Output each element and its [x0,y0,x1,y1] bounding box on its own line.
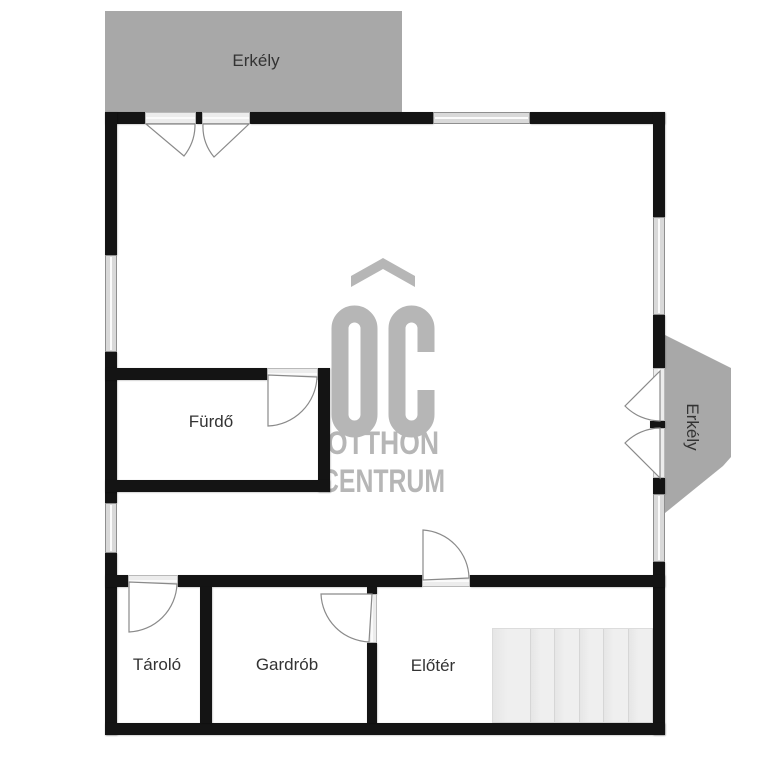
room-label-storage: Tároló [133,655,181,675]
wall-segment [105,575,128,587]
window [105,503,117,553]
watermark-line2: CENTRUM [321,463,445,499]
room-label-wardrobe: Gardrób [256,655,318,675]
wall-segment [250,112,433,124]
door-opening [202,112,250,124]
wall-segment [105,112,117,255]
door-swing [129,582,177,632]
door-swing [146,124,195,156]
window [433,112,530,124]
wall-segment [318,368,330,492]
stair-tread [530,629,554,722]
stair-tread [554,629,578,722]
door-opening [145,112,196,124]
door-swing [268,375,317,426]
room-label-hall: Előtér [411,656,455,676]
wall-segment [367,643,377,723]
stair-tread [628,629,652,722]
room-label-bathroom: Fürdő [189,412,233,432]
wall-segment [105,723,665,735]
wall-segment [105,368,267,380]
wall-segment [367,587,377,594]
door-opening [267,368,318,380]
door-opening [422,575,470,587]
door-swing [203,124,249,157]
oc-logo [340,314,440,429]
door-opening [128,575,178,587]
door-swing [321,594,372,642]
door-opening [653,428,665,478]
wall-segment [653,112,665,217]
stair-tread [493,629,530,722]
room-label-balcony-right: Erkély [682,403,702,450]
door-swing [423,530,469,580]
window [653,494,665,562]
wall-segment [653,478,665,494]
door-opening [653,368,665,421]
room-label-balcony-top: Erkély [232,51,279,71]
wall-segment [470,575,665,587]
stair-tread [579,629,603,722]
stairs [492,628,653,723]
window [653,217,665,315]
stair-tread [603,629,627,722]
wall-segment [530,112,665,124]
wall-segment [105,480,330,492]
window [105,255,117,352]
floor-plan: OTTHON CENTRUM [0,0,769,759]
wall-segment [650,421,665,428]
watermark-roof-icon [351,258,415,287]
wall-segment [178,575,422,587]
wall-segment [653,315,665,368]
watermark-line1: OTTHON [327,425,439,461]
door-opening [367,594,377,643]
wall-segment [653,562,665,735]
wall-segment [200,587,212,723]
